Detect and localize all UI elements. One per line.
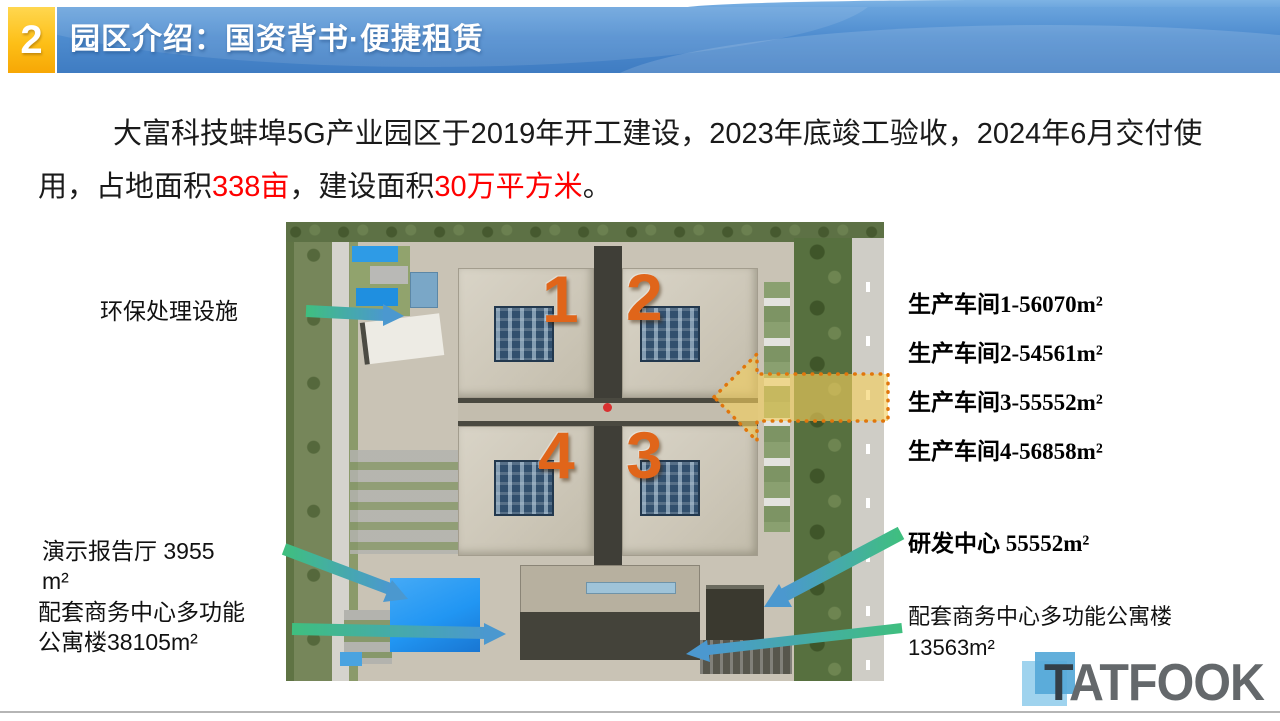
label-apartment-left-line2: 公寓楼38105m²: [38, 627, 245, 657]
logo-letter-t: T: [1044, 654, 1069, 712]
label-demo-hall: 演示报告厅 3955 m²: [42, 536, 215, 596]
workshop-3-area: 生产车间3-55552m²: [908, 391, 1103, 415]
building-number-2: 2: [626, 264, 663, 330]
photo-rd-center-building: [706, 585, 764, 640]
aerial-photo: 1 2 4 3: [286, 222, 884, 681]
photo-demo-hall-blue-roof: [390, 578, 480, 652]
label-apartment-left-line1: 配套商务中心多功能: [38, 597, 245, 627]
logo-text: TATFOOK: [1044, 653, 1264, 713]
intro-text-3: 。: [583, 171, 612, 203]
building-number-3: 3: [626, 422, 663, 488]
photo-center-marker: [603, 403, 612, 412]
tatfook-logo: TATFOOK: [1018, 652, 1276, 710]
photo-right-greenbelt: [794, 238, 852, 681]
photo-aux-building: [370, 266, 408, 284]
intro-text-2: ，建设面积: [289, 171, 434, 203]
photo-carports: [764, 282, 790, 532]
workshop-2-area: 生产车间2-54561m²: [908, 342, 1103, 366]
label-env-facility: 环保处理设施: [100, 296, 238, 326]
photo-office-building: [360, 313, 445, 364]
logo-letters-rest: ATFOOK: [1069, 654, 1264, 712]
workshop-1-area: 生产车间1-56070m²: [908, 293, 1103, 317]
intro-highlight-built-area: 30万平方米: [434, 171, 582, 203]
intro-paragraph: 大富科技蚌埠5G产业园区于2019年开工建设，2023年底竣工验收，2024年6…: [38, 108, 1244, 214]
photo-apartment-building-2: [700, 640, 792, 674]
building-number-1: 1: [542, 266, 579, 332]
photo-apartment-building-shadow: [520, 612, 700, 660]
label-apartment-right-line1: 配套商务中心多功能公寓楼: [908, 601, 1172, 632]
slide: 2 园区介绍：国资背书·便捷租赁 大富科技蚌埠5G产业园区于2019年开工建设，…: [0, 0, 1280, 721]
label-apartment-left: 配套商务中心多功能 公寓楼38105m²: [38, 597, 245, 657]
footer-divider: [0, 711, 1280, 713]
workshop-4-area: 生产车间4-56858m²: [908, 440, 1103, 464]
photo-apartment-skylight: [586, 582, 676, 594]
label-demo-hall-line2: m²: [42, 566, 215, 596]
label-rd-center: 研发中心 55552m²: [908, 524, 1089, 558]
photo-left-greenbelt: [286, 236, 332, 681]
section-number-badge: 2: [8, 7, 55, 73]
workshop-area-list: 生产车间1-56070m² 生产车间2-54561m² 生产车间3-55552m…: [908, 293, 1103, 489]
photo-env-facility-blue-roof: [352, 246, 398, 262]
photo-env-facility-blue-roof-2: [356, 288, 398, 306]
page-title: 园区介绍：国资背书·便捷租赁: [70, 7, 484, 73]
intro-highlight-area: 338亩: [212, 171, 289, 203]
photo-blue-pool: [340, 652, 362, 666]
building-number-4: 4: [538, 422, 575, 488]
photo-aux-long-building: [410, 272, 438, 308]
label-demo-hall-line1: 演示报告厅 3955: [42, 536, 215, 566]
photo-right-road: [852, 238, 884, 681]
